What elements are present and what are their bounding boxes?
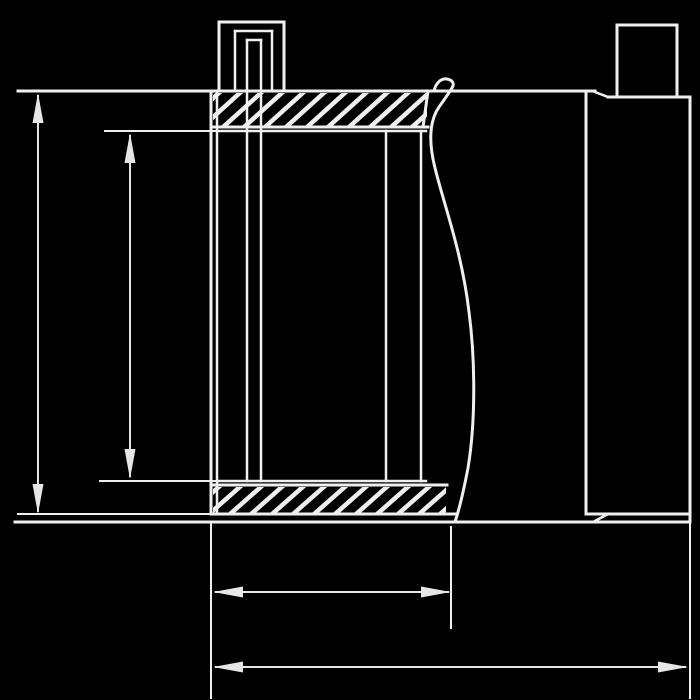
hatch-stroke <box>453 91 494 128</box>
arrowhead-down <box>33 484 44 514</box>
arrowhead-up <box>33 93 44 123</box>
arrowhead-up <box>125 133 136 163</box>
pipe-break-line <box>431 79 474 522</box>
hatch-stroke <box>327 91 368 128</box>
arrowhead-left <box>213 587 243 598</box>
dim-bore-height <box>125 133 136 479</box>
hatch-stroke <box>285 91 326 128</box>
technical-drawing-canvas <box>0 0 700 700</box>
hatch-stroke <box>306 91 347 128</box>
arrowhead-down <box>125 449 136 479</box>
hatch-stroke <box>180 91 221 128</box>
hatch-stroke <box>348 91 389 128</box>
arrowhead-right <box>421 587 451 598</box>
hatch-stroke <box>264 91 305 128</box>
dim-coupling-height <box>33 93 44 514</box>
dim-coupling-length <box>213 587 451 598</box>
hatch-stroke <box>201 91 242 128</box>
dim-overall-length <box>213 662 688 673</box>
arrowhead-left <box>213 662 243 673</box>
hatch-stroke <box>222 91 263 128</box>
pipe-coupling-cross-section-diagram <box>0 0 700 700</box>
screenshot-root: { "canvas": { "width": 700, "height": 70… <box>0 0 700 700</box>
hatch-stroke <box>369 91 410 128</box>
arrowhead-right <box>658 662 688 673</box>
bottom-flange-hatch <box>187 485 494 515</box>
hatch-stroke <box>243 91 284 128</box>
top-step-chamfer <box>595 92 608 97</box>
